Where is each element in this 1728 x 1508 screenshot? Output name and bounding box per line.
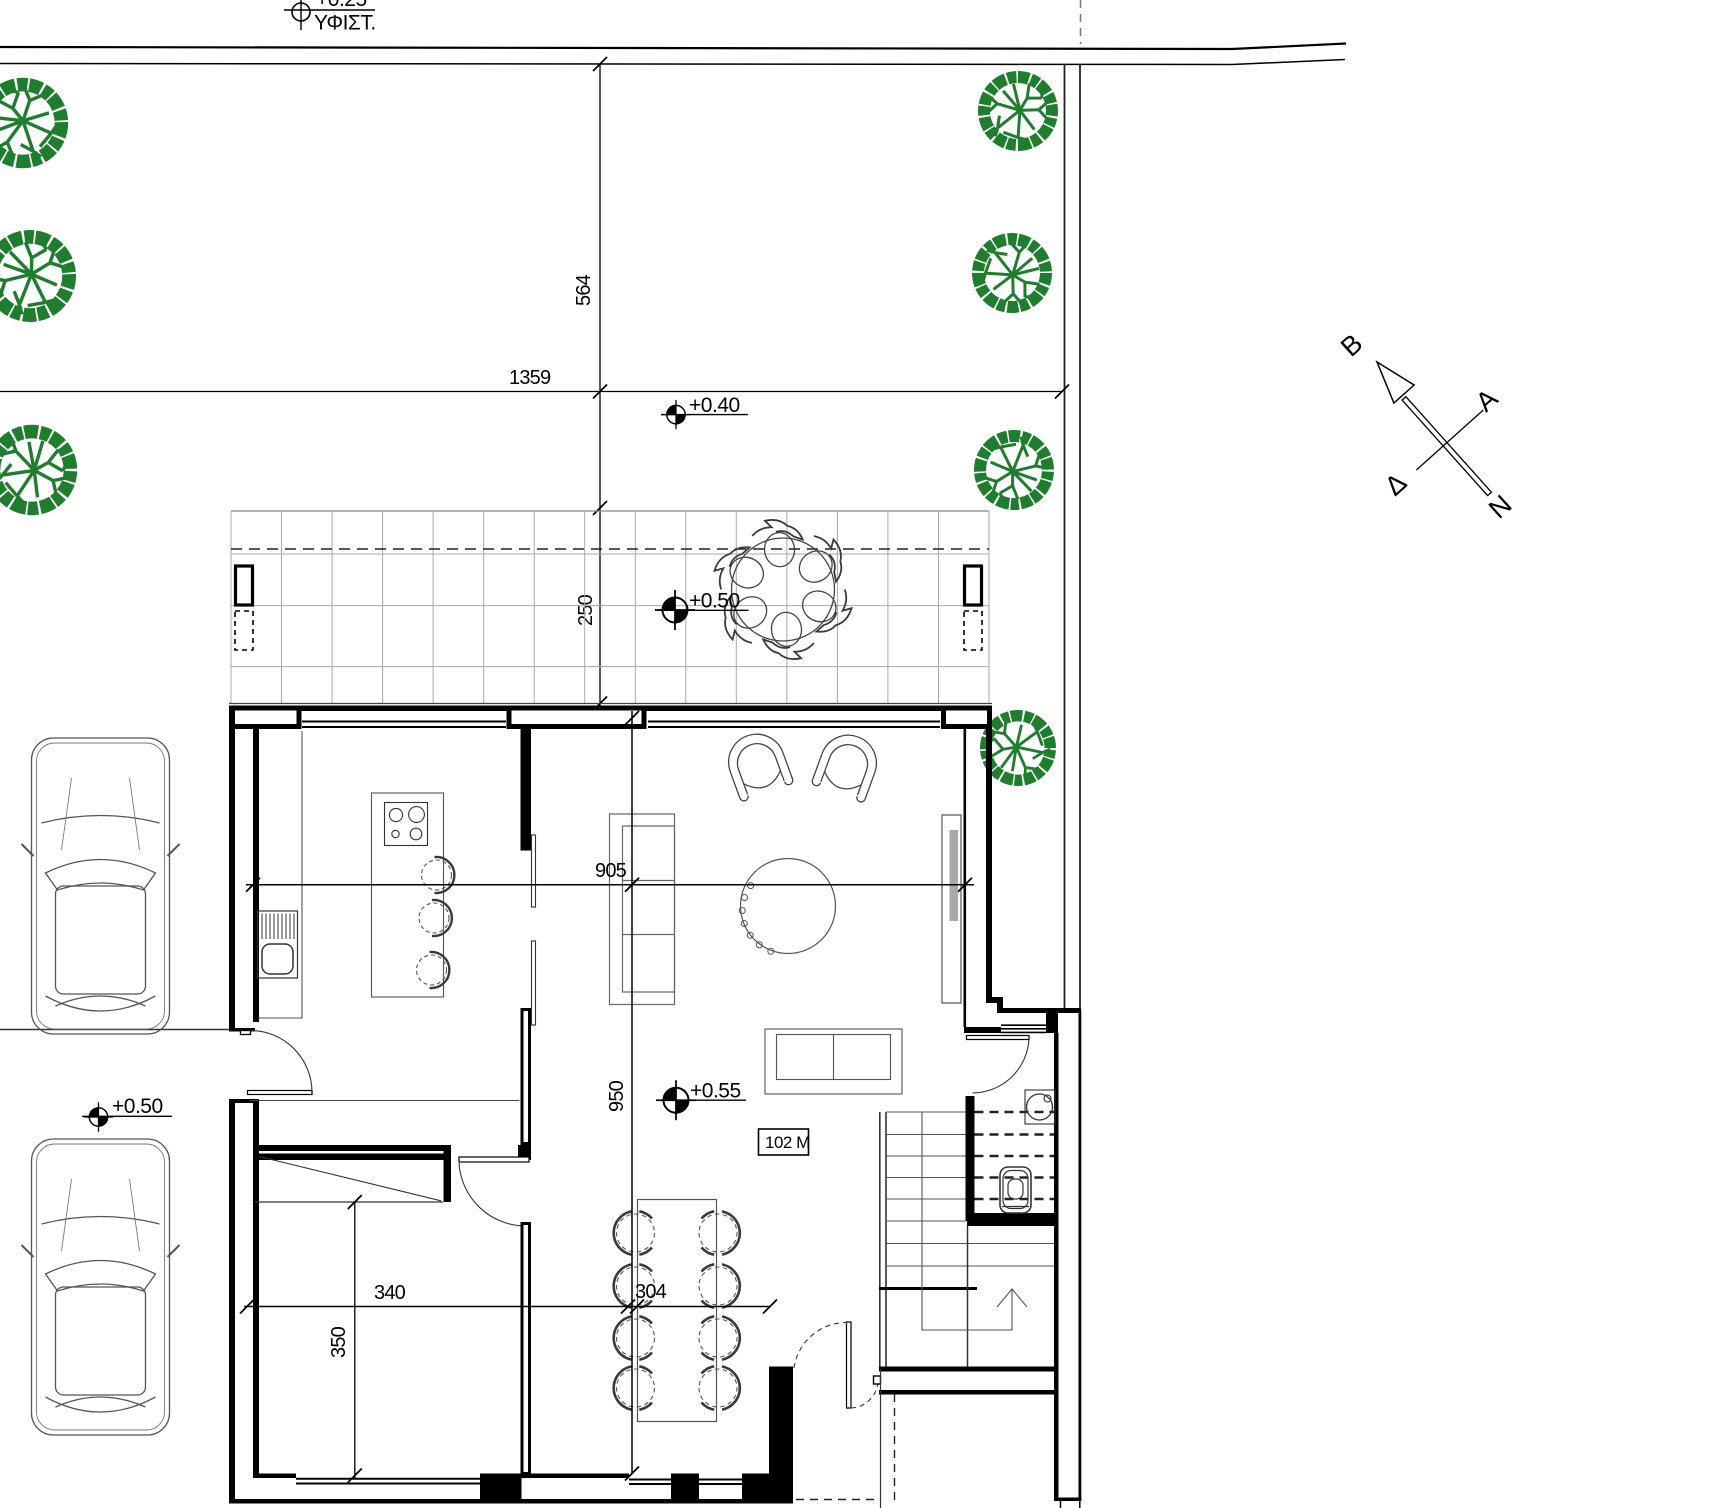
svg-text:+0.55: +0.55 <box>690 1080 741 1103</box>
svg-text:905: 905 <box>595 860 627 882</box>
svg-text:1359: 1359 <box>509 367 551 389</box>
svg-text:564: 564 <box>573 274 595 306</box>
svg-text:950: 950 <box>606 1080 628 1112</box>
svg-text:250: 250 <box>575 594 597 626</box>
svg-text:ΥΦΙΣΤ.: ΥΦΙΣΤ. <box>314 12 376 35</box>
svg-text:340: 340 <box>374 1282 406 1304</box>
svg-text:+0.50: +0.50 <box>689 590 740 613</box>
svg-text:350: 350 <box>328 1326 350 1358</box>
svg-text:+0.50: +0.50 <box>112 1095 163 1118</box>
svg-text:+0.25: +0.25 <box>316 0 367 11</box>
svg-text:304: 304 <box>635 1281 667 1303</box>
svg-text:+0.40: +0.40 <box>689 394 740 417</box>
svg-text:102 M: 102 M <box>765 1133 810 1152</box>
